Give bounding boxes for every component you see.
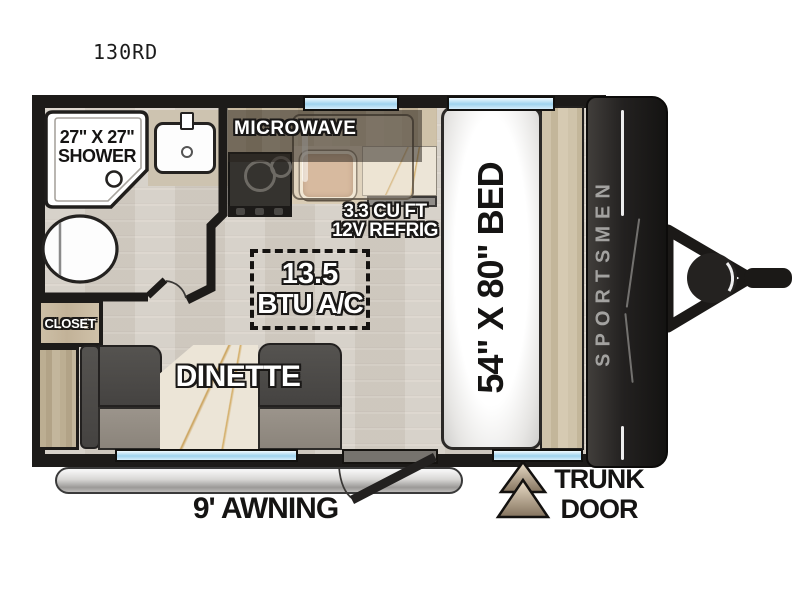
trunk-door-line1: TRUNK xyxy=(543,464,655,494)
cap-accent-swoosh xyxy=(626,218,641,307)
awning-label: 9' AWNING xyxy=(168,492,363,526)
microwave-label: MICROWAVE xyxy=(234,118,356,140)
ac-label: BTU A/C xyxy=(257,289,363,318)
bed-label: 54" X 80" BED xyxy=(470,162,512,393)
brand-name: SPORTSMEN xyxy=(593,177,616,367)
trunk-door-line2: DOOR xyxy=(543,494,655,524)
window xyxy=(303,96,399,111)
ac-unit-box: 13.5 BTU A/C xyxy=(250,249,370,330)
window xyxy=(115,449,298,462)
hitch-a-frame xyxy=(668,230,750,327)
window xyxy=(447,96,555,111)
cap-accent-swoosh xyxy=(624,313,633,383)
front-wardrobe xyxy=(37,347,79,450)
dinette-base-right xyxy=(258,407,342,450)
trunk-door-label: TRUNK DOOR xyxy=(543,464,655,524)
closet: CLOSET xyxy=(37,299,103,347)
awning-roll xyxy=(55,467,463,494)
floorplan-canvas: 130RD CLOSET xyxy=(0,0,800,600)
ac-size-label: 13.5 xyxy=(282,260,338,289)
shower-label: 27" X 27" SHOWER xyxy=(50,128,144,167)
refrigerator-type: 12V REFRIG xyxy=(330,221,440,240)
stove-knobs xyxy=(228,206,292,217)
propane-tank-icon xyxy=(687,253,737,303)
shower-name: SHOWER xyxy=(58,147,136,166)
refrigerator-label: 3.3 CU FT 12V REFRIG xyxy=(330,202,440,241)
bath-sink-drain xyxy=(181,146,193,158)
dinette-bench-arm xyxy=(80,345,100,449)
propane-tank-highlight xyxy=(727,263,733,291)
cap-accent-line xyxy=(621,110,624,216)
trunk-door-arrow-icon xyxy=(498,480,548,517)
bed-platform-wood xyxy=(540,106,584,450)
dinette-label: DINETTE xyxy=(128,360,348,394)
dinette-base-left xyxy=(98,407,162,450)
closet-label: CLOSET xyxy=(45,316,96,331)
cap-accent-line xyxy=(621,426,624,460)
model-title: 130RD xyxy=(93,40,158,64)
shower-size: 27" X 27" xyxy=(60,128,135,147)
window xyxy=(492,449,583,462)
refrigerator-size: 3.3 CU FT xyxy=(330,202,440,221)
hitch-coupler xyxy=(744,268,792,288)
bath-faucet-icon xyxy=(180,112,194,130)
